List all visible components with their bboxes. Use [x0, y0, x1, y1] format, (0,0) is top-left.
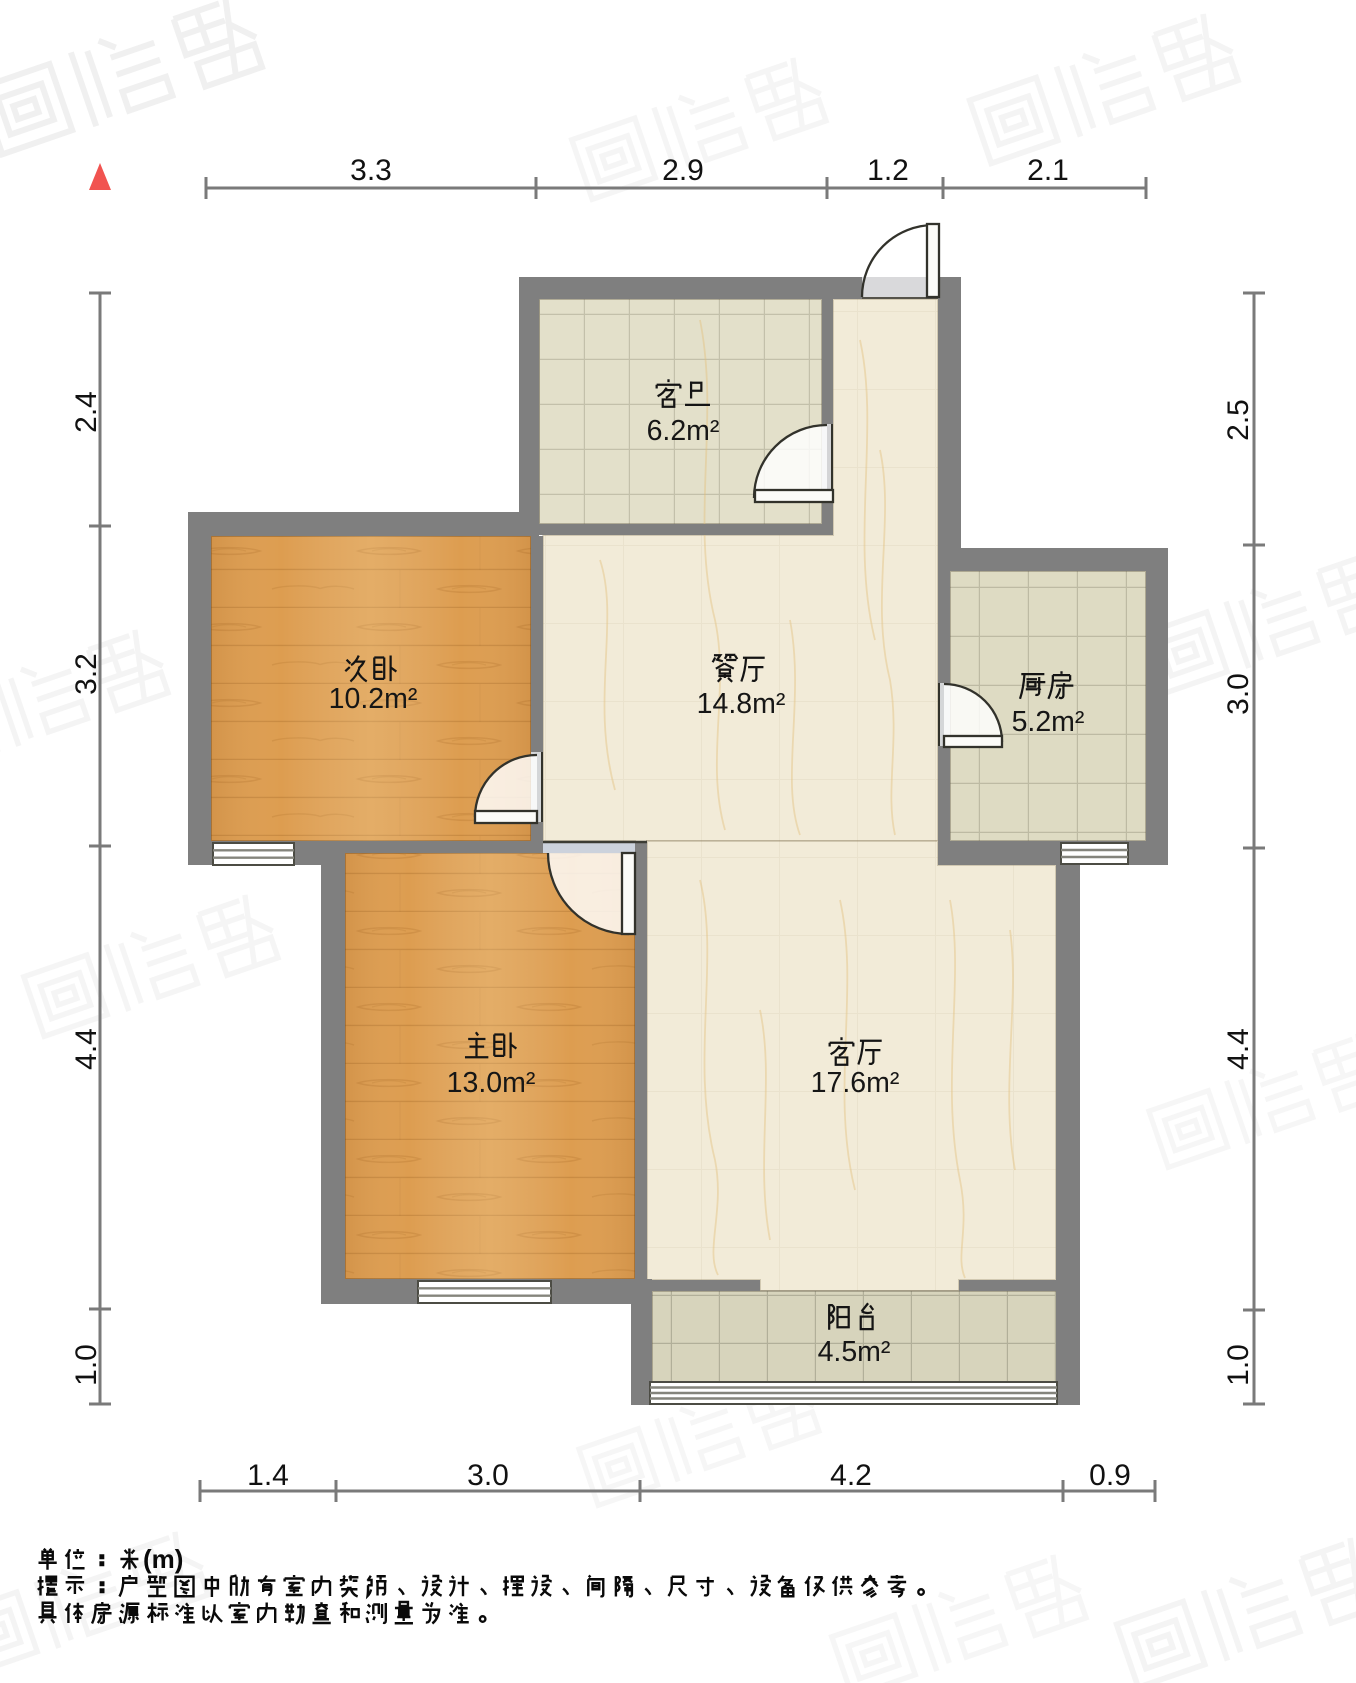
svg-text:4.5m²: 4.5m²	[818, 1336, 891, 1368]
svg-text:14.8m²: 14.8m²	[697, 688, 786, 720]
svg-text:3.0: 3.0	[1222, 673, 1255, 715]
svg-text:17.6m²: 17.6m²	[811, 1067, 900, 1099]
svg-text:4.4: 4.4	[1222, 1028, 1255, 1070]
svg-text:5.2m²: 5.2m²	[1012, 706, 1085, 738]
svg-text:0.9: 0.9	[1089, 1459, 1131, 1492]
svg-text:10.2m²: 10.2m²	[329, 683, 418, 715]
svg-text:3.0: 3.0	[467, 1459, 509, 1492]
svg-text:1.0: 1.0	[1222, 1344, 1255, 1386]
svg-text:6.2m²: 6.2m²	[647, 415, 720, 447]
svg-text:13.0m²: 13.0m²	[447, 1067, 536, 1099]
svg-text:3.2: 3.2	[70, 653, 103, 695]
svg-text:2.4: 2.4	[70, 391, 103, 433]
svg-text:3.3: 3.3	[350, 154, 392, 187]
svg-text:(m): (m)	[143, 1544, 183, 1574]
svg-text:4.2: 4.2	[830, 1459, 872, 1492]
svg-text:2.5: 2.5	[1222, 399, 1255, 441]
svg-text:1.2: 1.2	[867, 154, 909, 187]
svg-text:1.0: 1.0	[70, 1344, 103, 1386]
svg-text:2.9: 2.9	[662, 154, 704, 187]
svg-text:1.4: 1.4	[247, 1459, 289, 1492]
svg-text:4.4: 4.4	[70, 1028, 103, 1070]
svg-text:2.1: 2.1	[1027, 154, 1069, 187]
